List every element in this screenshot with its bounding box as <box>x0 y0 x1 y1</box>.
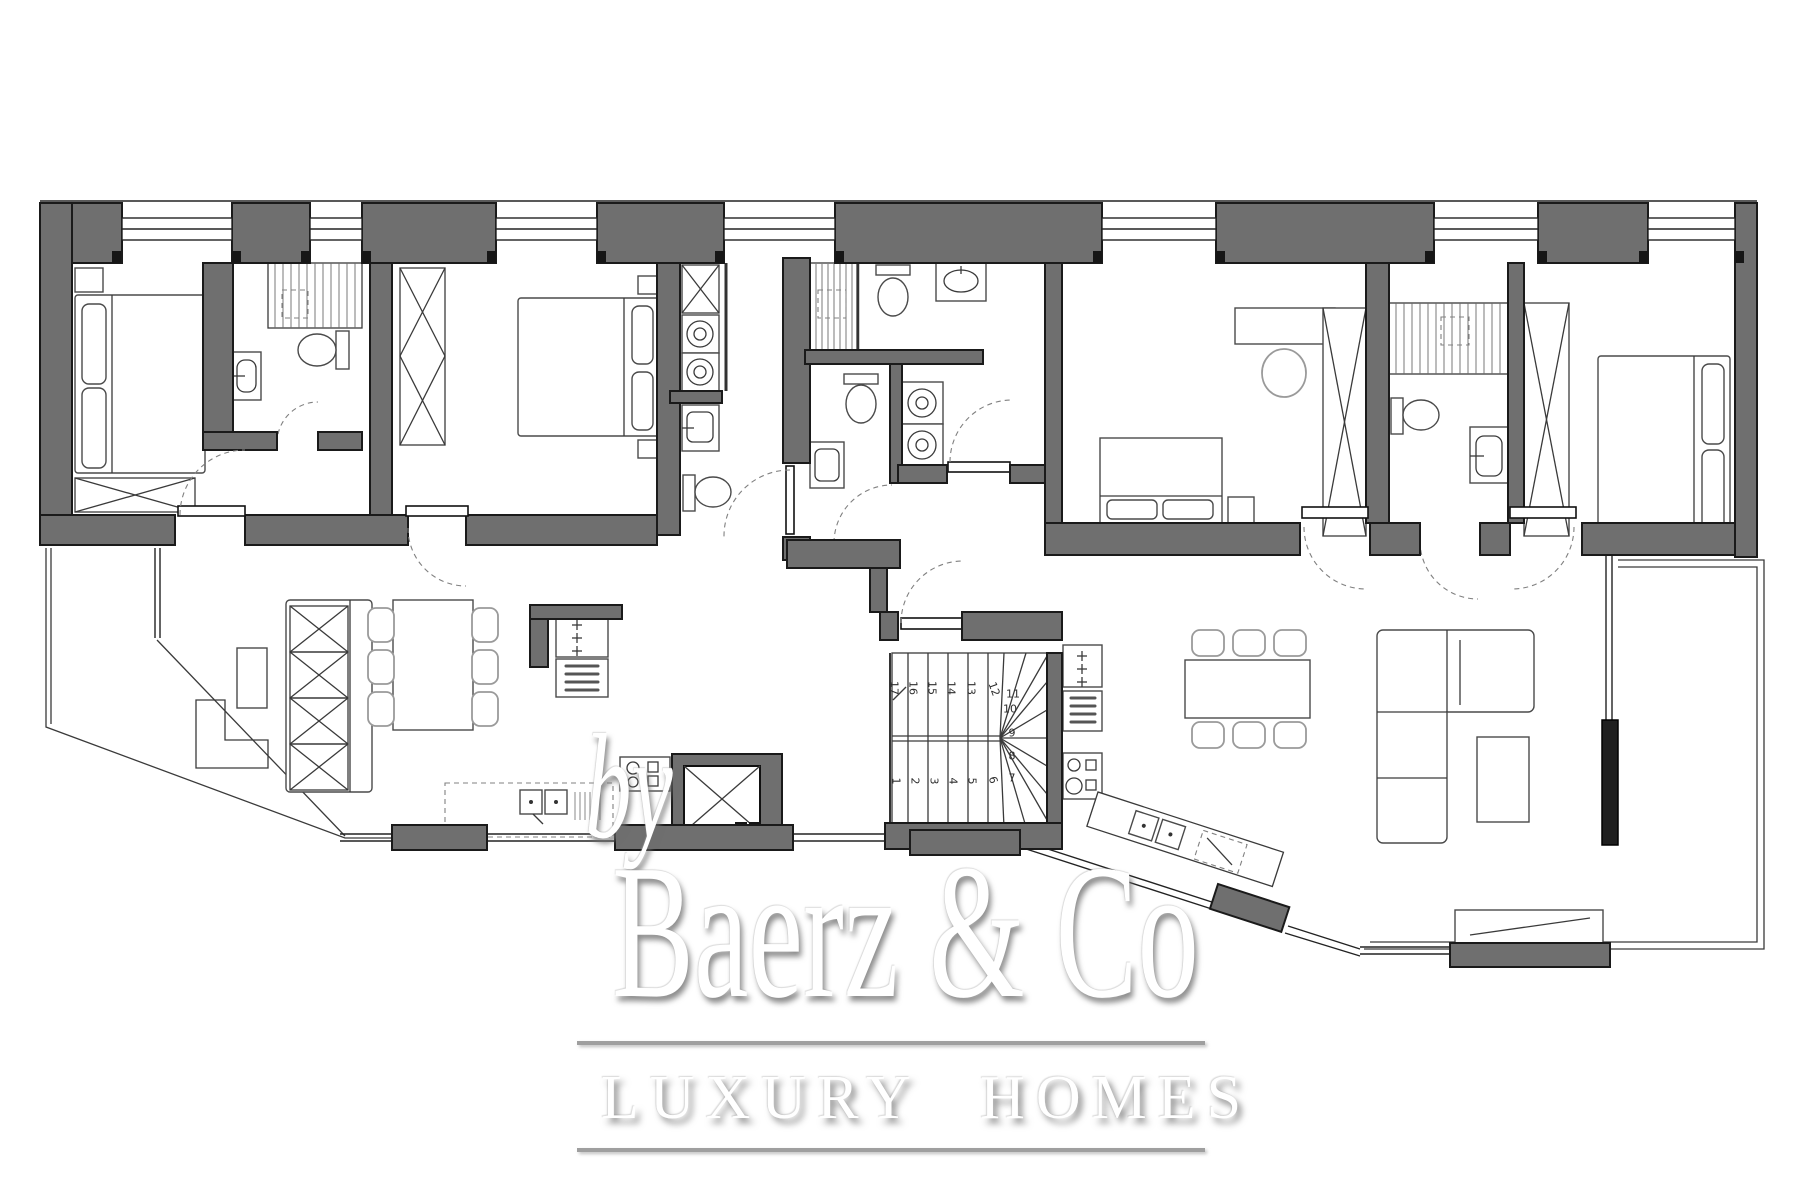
laundry-column-right <box>902 382 943 466</box>
bedroom-4 <box>1524 303 1730 536</box>
washing-machine-icon <box>902 382 943 424</box>
nightstand-icon <box>75 268 103 292</box>
desk-chair-icon <box>1262 349 1306 397</box>
sink-icon <box>1470 427 1508 483</box>
stair-step-number: 5 <box>966 778 979 785</box>
bathroom-middle-upper <box>876 263 986 316</box>
washing-machine-icon <box>682 353 719 391</box>
stair-step-number: 2 <box>909 778 922 785</box>
watermark-rule-top <box>577 1041 1205 1045</box>
door-right-apartment <box>948 400 1012 472</box>
bathroom-1 <box>233 263 362 443</box>
sink-icon <box>682 405 719 451</box>
storage-icon <box>682 265 719 313</box>
pillow-icon <box>632 372 653 430</box>
pillow-icon <box>82 304 106 384</box>
stair-step-number: 15 <box>926 681 939 695</box>
wardrobe-icon <box>1323 308 1366 536</box>
kitchen-counter-icon <box>1087 792 1284 886</box>
pillow-icon <box>1702 450 1724 530</box>
coffee-table-icon <box>1477 737 1529 822</box>
stair-step-number: 14 <box>945 681 958 695</box>
wall-left <box>40 203 72 545</box>
desk-icon <box>1235 308 1335 344</box>
stair-step-number: 4 <box>947 778 960 785</box>
pillow-icon <box>82 388 106 468</box>
upper-stair-flight <box>810 263 858 350</box>
stove-icon <box>620 757 670 791</box>
pillow-icon <box>1107 500 1157 519</box>
stair-step-number: 10 <box>1003 703 1017 716</box>
laundry-column-left <box>682 263 731 511</box>
door-swing <box>1420 541 1478 599</box>
washing-machine-icon <box>682 315 719 353</box>
stair-step-number: 13 <box>965 681 978 695</box>
shower-icon <box>1389 303 1508 374</box>
toilet-icon <box>683 475 731 511</box>
washing-machine-icon <box>902 424 943 466</box>
toilet-icon <box>1391 398 1439 434</box>
sofa-icon <box>286 600 372 792</box>
stair-step-number: 17 <box>888 681 901 695</box>
stair-step-number: 11 <box>1006 688 1020 701</box>
door-swing <box>277 402 318 443</box>
bedroom-1 <box>75 268 205 512</box>
stove-icon <box>1063 753 1102 799</box>
floor-plan-drawing <box>0 0 1800 1200</box>
nightstand-icon <box>638 440 658 458</box>
wardrobe-icon <box>400 268 445 445</box>
oven-icon <box>1063 691 1102 731</box>
coffee-table-icon <box>237 648 267 708</box>
balcony-bench <box>196 700 268 768</box>
watermark-rule-bottom <box>577 1148 1205 1152</box>
sink-icon <box>936 263 986 301</box>
wardrobe-icon <box>75 478 195 512</box>
oven-icon <box>556 659 608 697</box>
toilet-icon <box>844 374 878 423</box>
nightstand-icon <box>638 276 658 294</box>
toilet-icon <box>876 265 910 316</box>
pillow-icon <box>1702 364 1724 444</box>
bedroom-2 <box>400 268 660 458</box>
floor-plan-page: 1 2 3 4 5 6 7 8 9 10 11 12 13 14 15 16 1… <box>0 0 1800 1200</box>
stair-step-number: 1 <box>890 778 903 785</box>
wardrobe-icon <box>1524 303 1569 536</box>
toilet-icon <box>298 331 349 369</box>
fridge-icon <box>1063 645 1102 687</box>
stair-step-number: 8 <box>1009 750 1016 763</box>
tv-bench-icon <box>1455 910 1603 943</box>
sink-icon <box>233 352 261 400</box>
staircase <box>890 653 1047 827</box>
sink-icon <box>810 442 844 488</box>
nightstand-icon <box>1228 497 1254 523</box>
dining-table-icon <box>368 600 498 730</box>
stair-step-number: 16 <box>907 681 920 695</box>
stair-step-number: 7 <box>1009 772 1016 785</box>
door-swing <box>834 485 892 543</box>
shower-icon <box>268 263 362 328</box>
living-dining-left <box>237 600 498 792</box>
pillow-icon <box>632 306 653 364</box>
dining-table-icon <box>1185 630 1310 748</box>
bathroom-middle-lower <box>810 374 892 543</box>
stair-step-number: 9 <box>1009 727 1016 740</box>
stair-step-number: 3 <box>928 778 941 785</box>
bedroom-3 <box>1100 308 1366 536</box>
door-left-apartment <box>724 466 794 537</box>
pillow-icon <box>1163 500 1213 519</box>
door-stair-hall <box>901 561 963 629</box>
